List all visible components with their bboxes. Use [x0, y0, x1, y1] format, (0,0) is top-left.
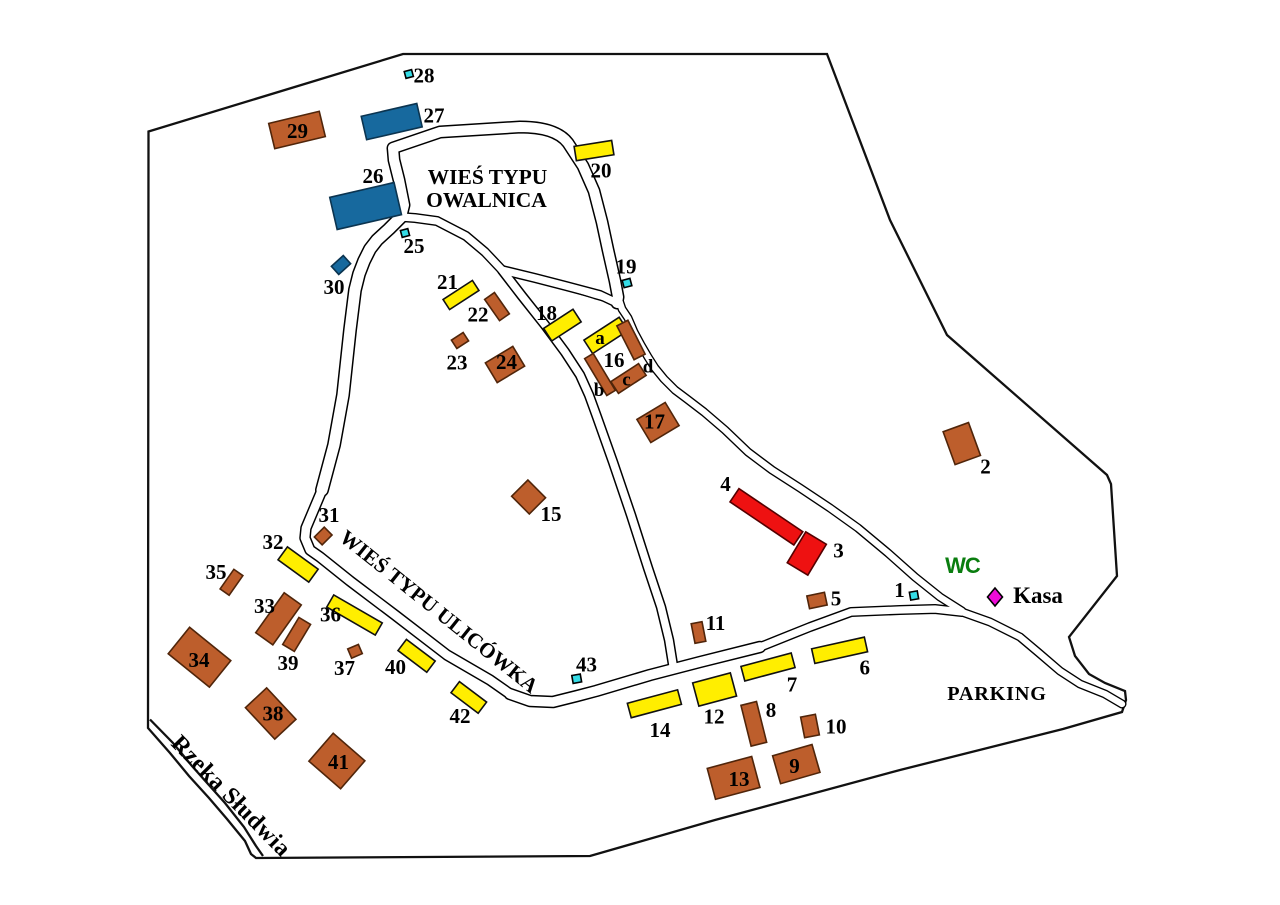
svg-text:14: 14 [650, 718, 672, 742]
svg-text:Kasa: Kasa [1013, 583, 1063, 608]
svg-text:6: 6 [860, 656, 871, 680]
svg-text:15: 15 [541, 502, 562, 526]
svg-text:13: 13 [729, 767, 750, 791]
svg-text:OWALNICA: OWALNICA [426, 188, 547, 212]
svg-text:33: 33 [254, 594, 275, 618]
svg-text:WC: WC [945, 553, 981, 578]
svg-text:d: d [643, 357, 654, 378]
svg-text:4: 4 [720, 472, 731, 496]
svg-text:41: 41 [328, 750, 349, 774]
svg-text:35: 35 [206, 560, 227, 584]
svg-text:43: 43 [576, 653, 597, 677]
svg-text:40: 40 [385, 655, 406, 679]
svg-text:12: 12 [704, 705, 725, 729]
svg-text:17: 17 [644, 410, 665, 434]
svg-text:28: 28 [414, 64, 435, 88]
svg-text:39: 39 [278, 651, 299, 675]
svg-text:9: 9 [789, 754, 800, 778]
svg-text:25: 25 [404, 234, 425, 258]
svg-text:1: 1 [894, 578, 905, 602]
svg-text:38: 38 [263, 702, 284, 726]
svg-text:29: 29 [287, 119, 308, 143]
svg-text:8: 8 [766, 698, 777, 722]
svg-text:26: 26 [363, 164, 384, 188]
svg-text:24: 24 [496, 350, 518, 374]
svg-text:30: 30 [324, 275, 345, 299]
svg-text:c: c [622, 370, 630, 391]
svg-text:3: 3 [833, 539, 844, 563]
svg-text:7: 7 [787, 673, 798, 697]
svg-text:5: 5 [831, 587, 842, 611]
svg-text:34: 34 [189, 648, 211, 672]
svg-text:a: a [595, 328, 605, 349]
svg-text:20: 20 [591, 159, 612, 183]
svg-text:36: 36 [320, 603, 341, 627]
svg-text:PARKING: PARKING [947, 683, 1046, 705]
svg-text:18: 18 [536, 301, 557, 325]
svg-text:31: 31 [319, 503, 340, 527]
svg-text:32: 32 [263, 530, 284, 554]
svg-text:WIEŚ TYPU: WIEŚ TYPU [428, 165, 548, 189]
svg-text:23: 23 [447, 351, 468, 375]
svg-text:21: 21 [437, 270, 458, 294]
svg-text:19: 19 [616, 255, 637, 279]
svg-text:b: b [594, 380, 605, 401]
svg-text:10: 10 [826, 715, 847, 739]
svg-text:37: 37 [334, 656, 355, 680]
svg-text:27: 27 [424, 104, 445, 128]
svg-text:42: 42 [450, 704, 471, 728]
svg-text:11: 11 [706, 611, 726, 635]
svg-text:2: 2 [980, 455, 991, 479]
svg-text:22: 22 [468, 303, 489, 327]
svg-text:16: 16 [604, 348, 625, 372]
